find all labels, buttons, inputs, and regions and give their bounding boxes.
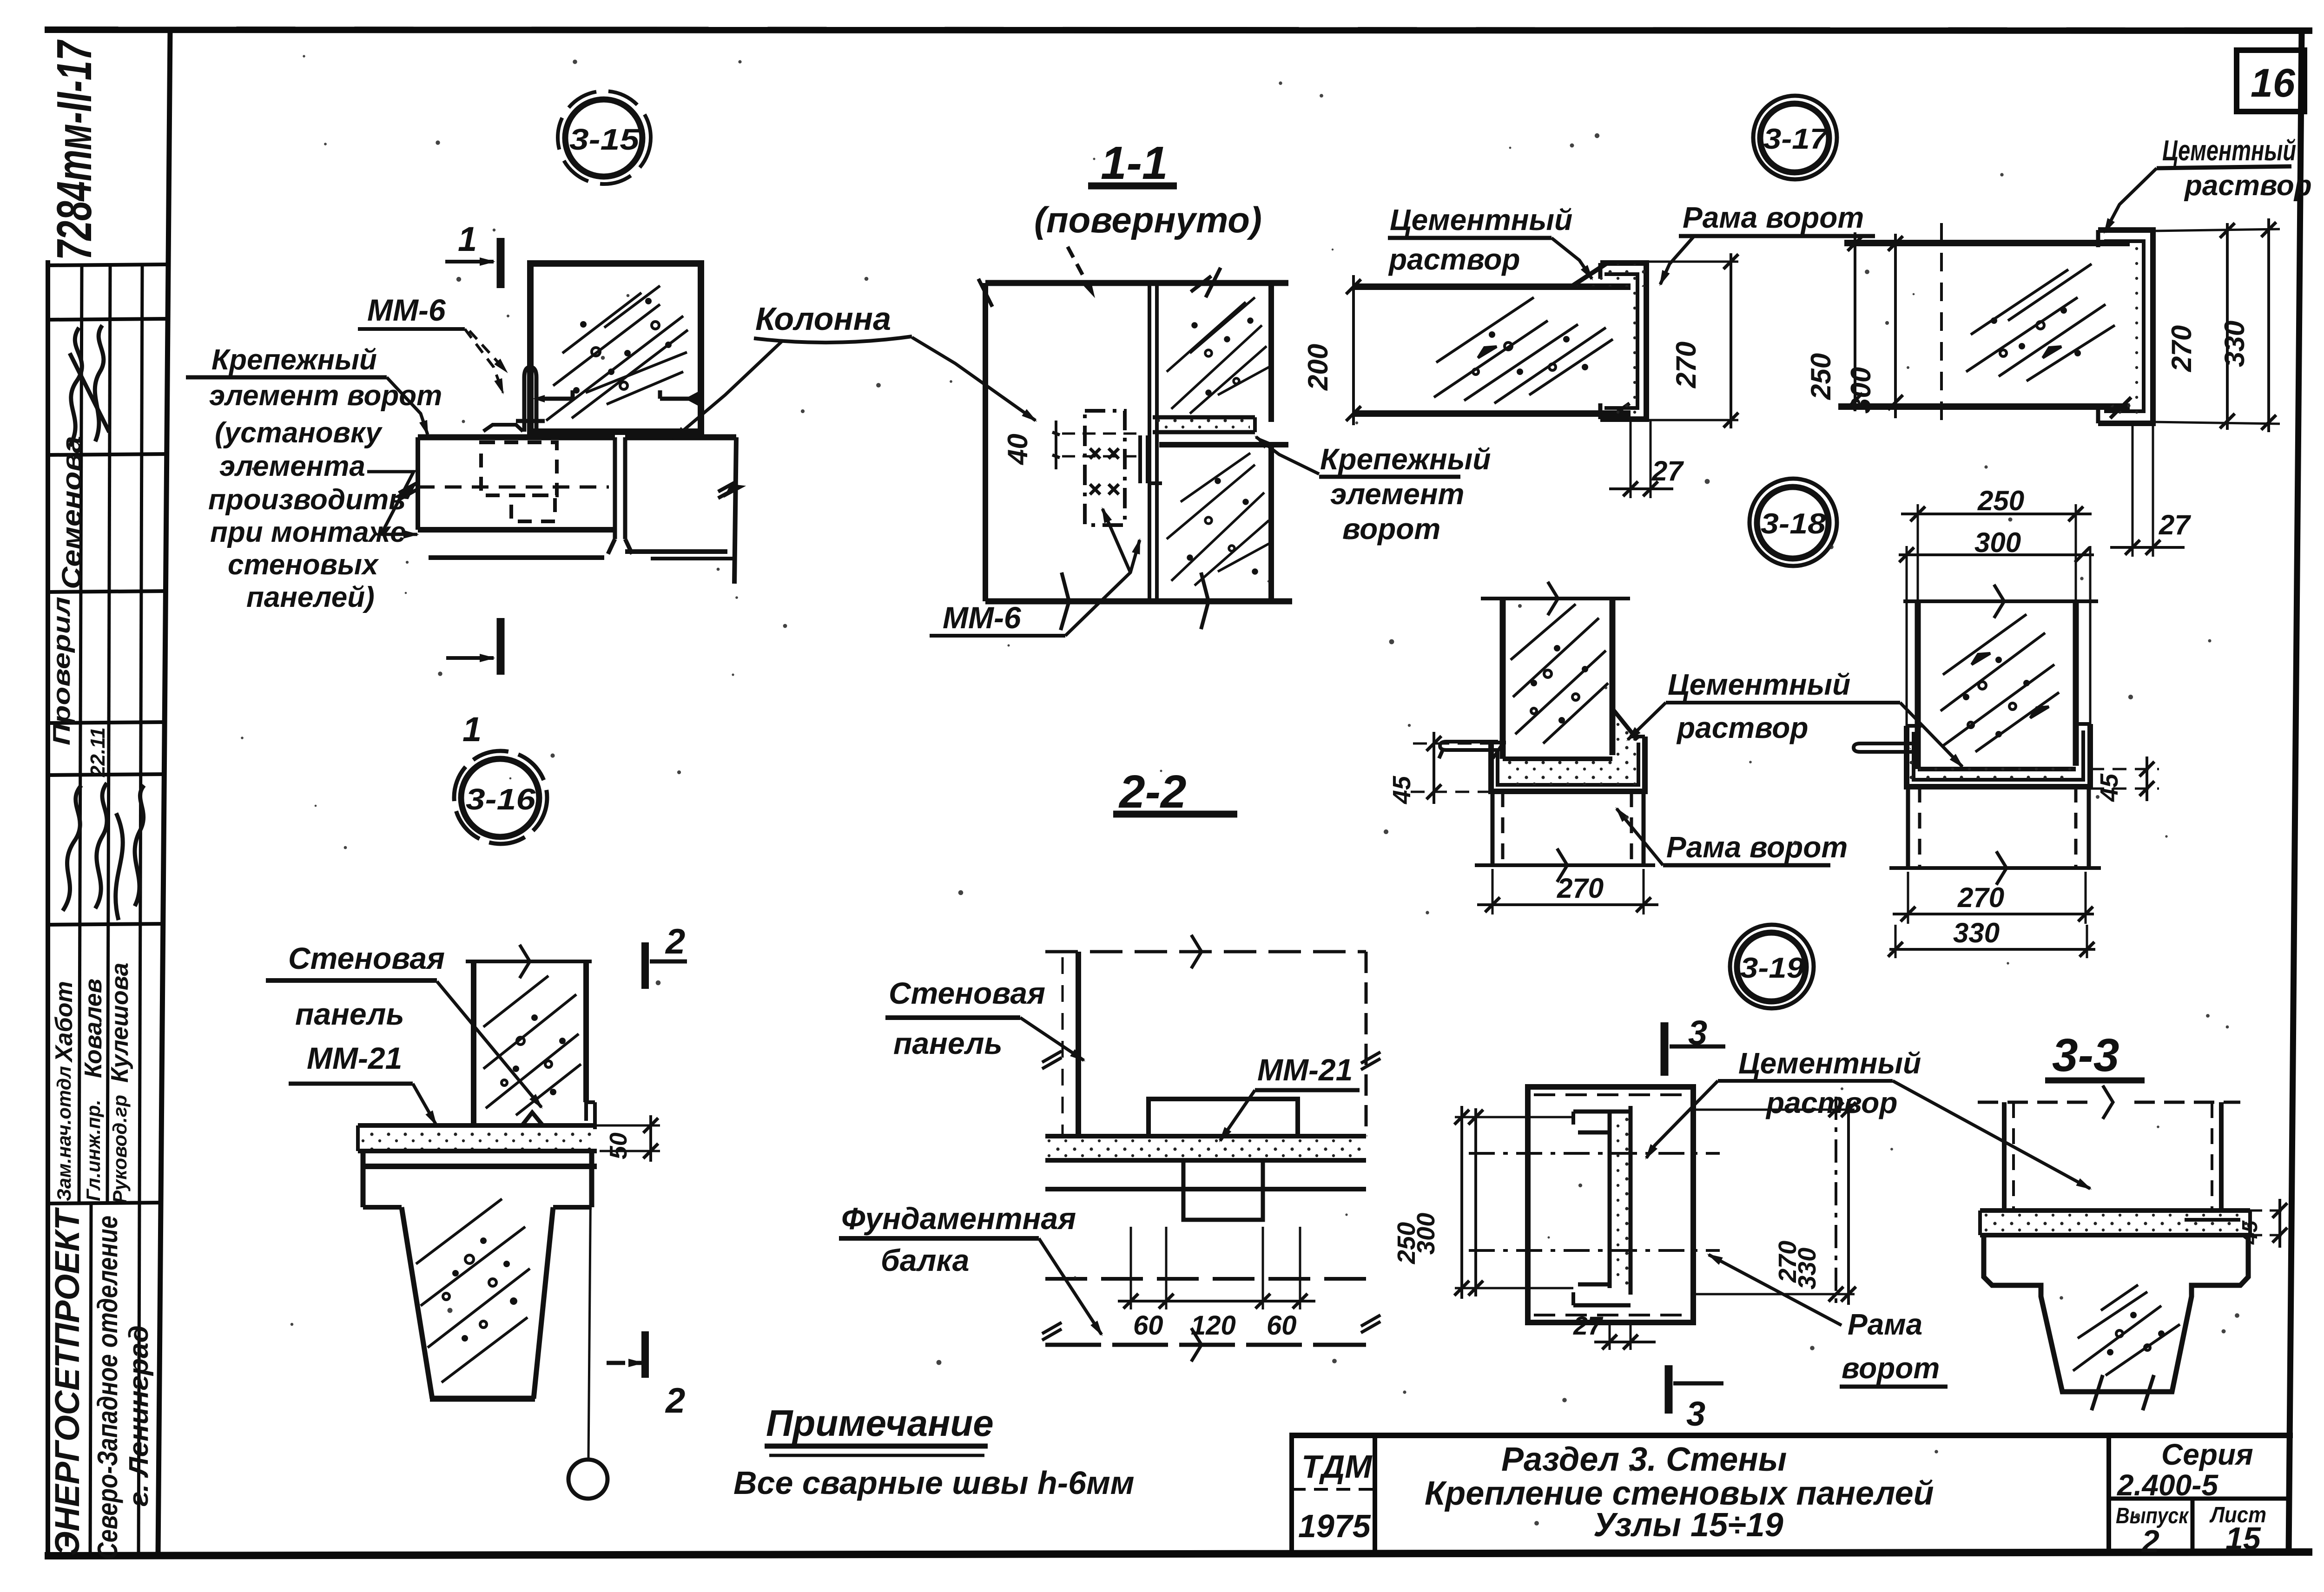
svg-text:Руковод.гр: Руковод.гр [109, 1095, 131, 1204]
svg-text:270: 270 [1557, 873, 1604, 904]
svg-text:Стеновая: Стеновая [288, 941, 445, 975]
svg-text:Узлы 15÷19: Узлы 15÷19 [1593, 1506, 1783, 1544]
svg-text:27: 27 [1573, 1311, 1604, 1340]
svg-text:раствор: раствор [1676, 711, 1808, 744]
svg-text:ЭНЕРГОСЕТПРОЕКТ: ЭНЕРГОСЕТПРОЕКТ [48, 1207, 86, 1556]
svg-text:при монтаже: при монтаже [210, 516, 406, 548]
svg-text:ворот: ворот [1342, 512, 1440, 546]
svg-text:ММ-6: ММ-6 [367, 293, 446, 327]
svg-text:1975: 1975 [1298, 1508, 1371, 1544]
svg-text:7284тм-II-17: 7284тм-II-17 [47, 39, 102, 260]
svg-text:330: 330 [1953, 917, 2000, 948]
svg-text:2: 2 [665, 1381, 685, 1421]
svg-text:Проверил: Проверил [48, 597, 75, 745]
svg-text:Рама ворот: Рама ворот [1666, 830, 1848, 864]
svg-text:Стеновая: Стеновая [889, 976, 1045, 1010]
svg-text:Ковалев: Ковалев [80, 979, 107, 1078]
svg-text:Семенова: Семенова [57, 436, 87, 589]
svg-text:г. Ленинград: г. Ленинград [124, 1325, 154, 1506]
svg-text:элемент ворот: элемент ворот [209, 380, 442, 412]
svg-text:раствор: раствор [1388, 243, 1520, 276]
svg-text:Раздел 3. Стены: Раздел 3. Стены [1501, 1441, 1787, 1478]
svg-text:3-3: 3-3 [2052, 1029, 2119, 1081]
svg-text:Примечание: Примечание [766, 1402, 994, 1444]
svg-text:Зам.нач.отдл: Зам.нач.отдл [53, 1066, 75, 1201]
svg-text:балка: балка [881, 1243, 969, 1277]
svg-text:Крепежный: Крепежный [211, 344, 377, 376]
svg-text:2.400-5: 2.400-5 [2117, 1468, 2218, 1502]
svg-text:панель: панель [295, 997, 404, 1031]
svg-text:120: 120 [1191, 1310, 1236, 1341]
svg-text:(повернуто): (повернуто) [1034, 199, 1262, 240]
svg-text:Рама ворот: Рама ворот [1683, 201, 1864, 234]
svg-text:2: 2 [665, 922, 685, 961]
svg-text:15: 15 [2225, 1521, 2261, 1556]
svg-text:Хабот: Хабот [51, 981, 78, 1063]
svg-text:3-19: 3-19 [1740, 952, 1805, 984]
svg-text:Цементный: Цементный [1390, 203, 1572, 237]
svg-text:1: 1 [458, 220, 477, 258]
svg-text:200: 200 [1302, 344, 1334, 391]
svg-text:250: 250 [1805, 353, 1836, 400]
svg-text:3-18: 3-18 [1761, 508, 1826, 540]
svg-text:Цементный: Цементный [1668, 668, 1850, 701]
svg-text:3: 3 [1688, 1013, 1707, 1052]
svg-text:элемента: элемента [219, 450, 365, 482]
svg-text:300: 300 [1412, 1213, 1440, 1255]
svg-text:22.11: 22.11 [86, 727, 109, 777]
svg-text:ММ-21: ММ-21 [307, 1041, 402, 1075]
svg-text:панель: панель [893, 1026, 1003, 1060]
svg-text:1-1: 1-1 [1101, 137, 1168, 189]
svg-text:Гл.инж.пр.: Гл.инж.пр. [82, 1099, 104, 1201]
svg-text:Крепежный: Крепежный [1320, 442, 1491, 476]
svg-text:раствор: раствор [1765, 1086, 1897, 1119]
svg-text:1: 1 [462, 710, 482, 749]
svg-text:16: 16 [2251, 61, 2296, 105]
svg-text:Северо-Западное отделение: Северо-Западное отделение [92, 1216, 123, 1559]
svg-text:330: 330 [2219, 321, 2250, 367]
svg-text:элемент: элемент [1330, 477, 1464, 511]
svg-text:2-2: 2-2 [1118, 766, 1187, 818]
svg-text:50: 50 [605, 1132, 632, 1159]
svg-text:330: 330 [1793, 1248, 1821, 1289]
svg-text:3: 3 [1686, 1395, 1705, 1433]
svg-text:Кулешова: Кулешова [106, 963, 133, 1083]
svg-text:3-16: 3-16 [466, 783, 535, 816]
svg-text:45: 45 [2095, 773, 2123, 802]
svg-text:270: 270 [2166, 325, 2197, 372]
svg-text:3-17: 3-17 [1763, 123, 1829, 155]
svg-text:Цементный: Цементный [2162, 135, 2296, 167]
svg-text:ворот: ворот [1842, 1351, 1940, 1385]
svg-text:300: 300 [1974, 527, 2021, 558]
svg-text:3-15: 3-15 [569, 123, 640, 156]
svg-text:ТДМ: ТДМ [1301, 1448, 1373, 1485]
svg-text:27: 27 [1651, 455, 1684, 487]
svg-text:Колонна: Колонна [755, 301, 891, 337]
svg-text:60: 60 [1267, 1310, 1297, 1341]
svg-text:270: 270 [1670, 342, 1702, 388]
svg-text:2: 2 [2141, 1524, 2159, 1559]
svg-text:(установку: (установку [215, 417, 383, 449]
svg-text:60: 60 [1133, 1310, 1163, 1341]
svg-text:раствор: раствор [2184, 170, 2312, 202]
svg-text:Серия: Серия [2161, 1438, 2253, 1471]
svg-text:27: 27 [2159, 509, 2191, 540]
svg-text:Рама: Рама [1848, 1308, 1922, 1341]
svg-text:ММ-6: ММ-6 [943, 600, 1022, 635]
svg-text:Фундаментная: Фундаментная [841, 1201, 1076, 1236]
svg-text:45: 45 [2238, 1220, 2262, 1245]
svg-text:250: 250 [1977, 485, 2024, 516]
svg-text:Цементный: Цементный [1738, 1046, 1921, 1080]
svg-text:стеновых: стеновых [228, 549, 379, 581]
svg-text:производить: производить [208, 484, 406, 516]
svg-text:ММ-21: ММ-21 [1257, 1053, 1353, 1087]
svg-text:270: 270 [1957, 882, 2004, 913]
svg-text:панелей): панелей) [246, 581, 375, 613]
svg-text:45: 45 [1388, 776, 1416, 804]
svg-text:Все сварные швы h-6мм: Все сварные швы h-6мм [733, 1465, 1135, 1501]
svg-text:40: 40 [1002, 434, 1033, 465]
